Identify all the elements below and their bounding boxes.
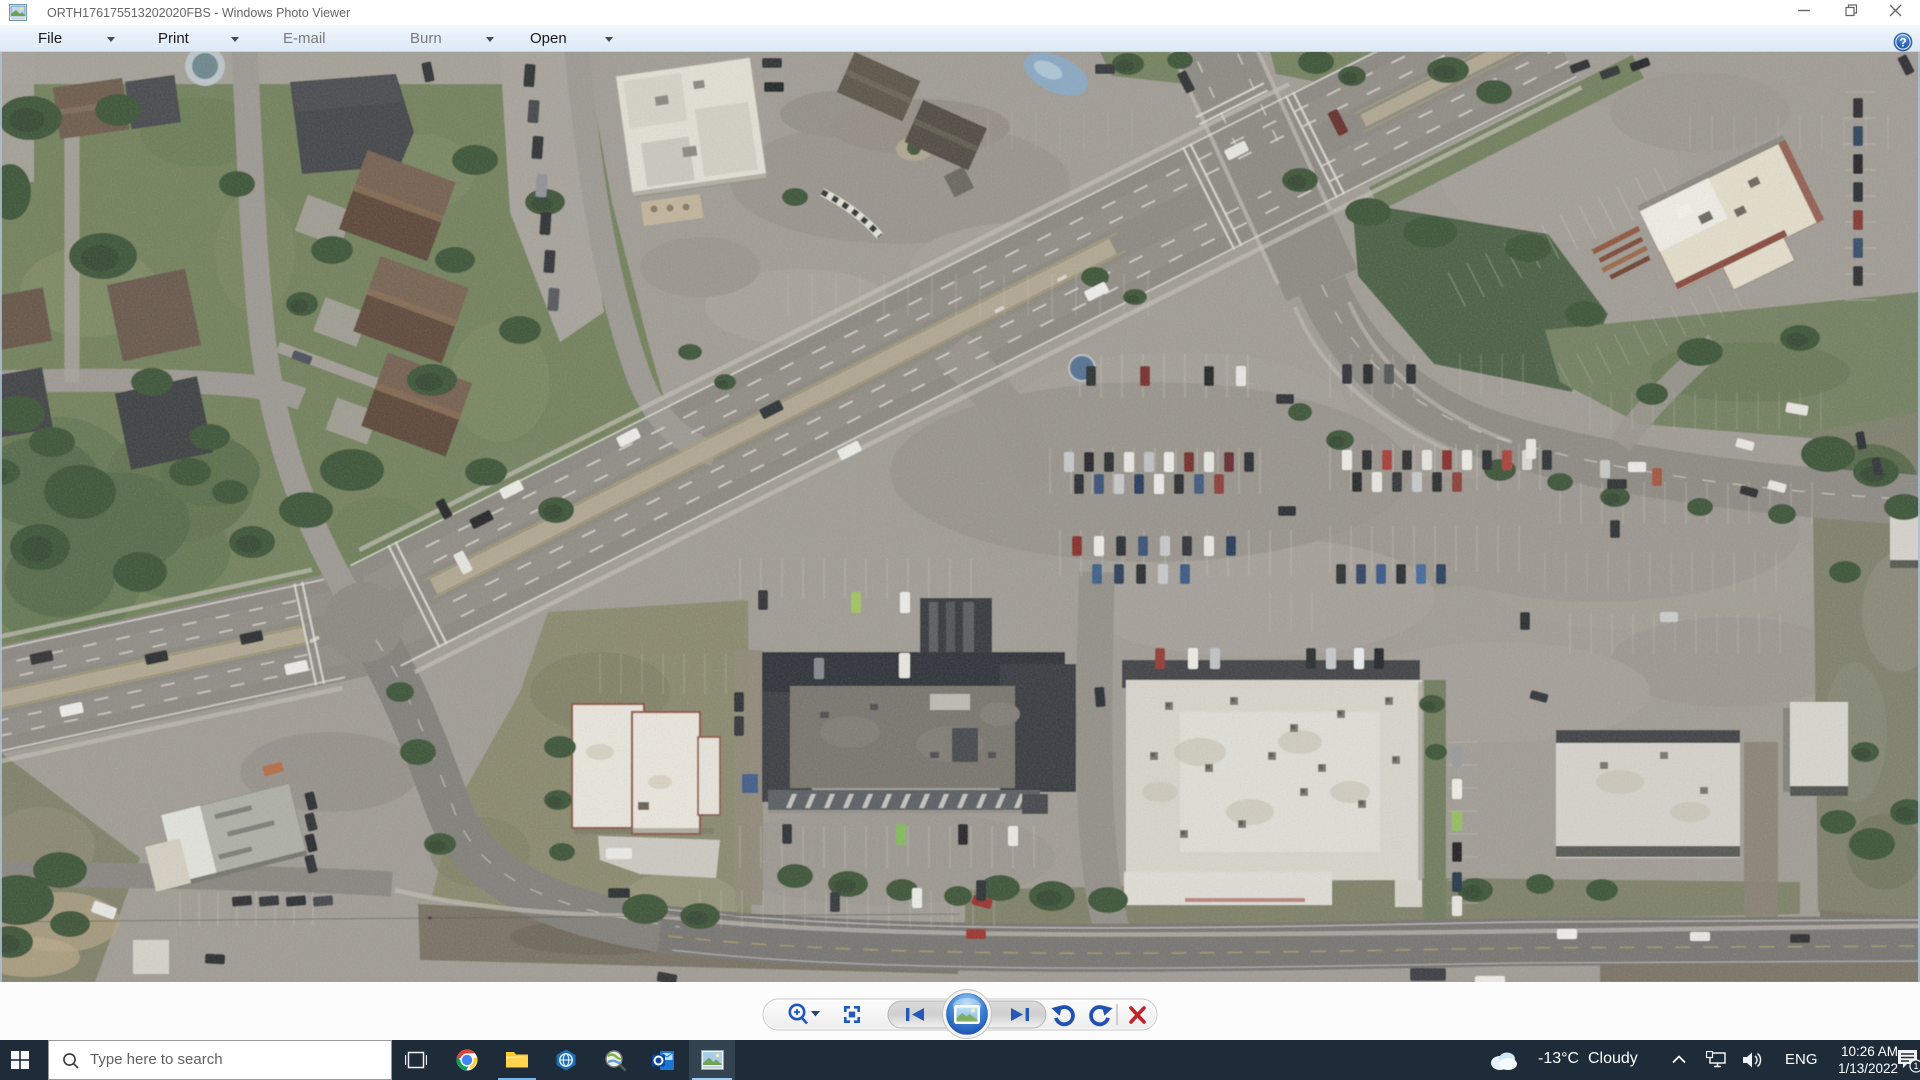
svg-text:1: 1 xyxy=(1913,1061,1918,1071)
svg-text:?: ? xyxy=(1899,36,1906,50)
